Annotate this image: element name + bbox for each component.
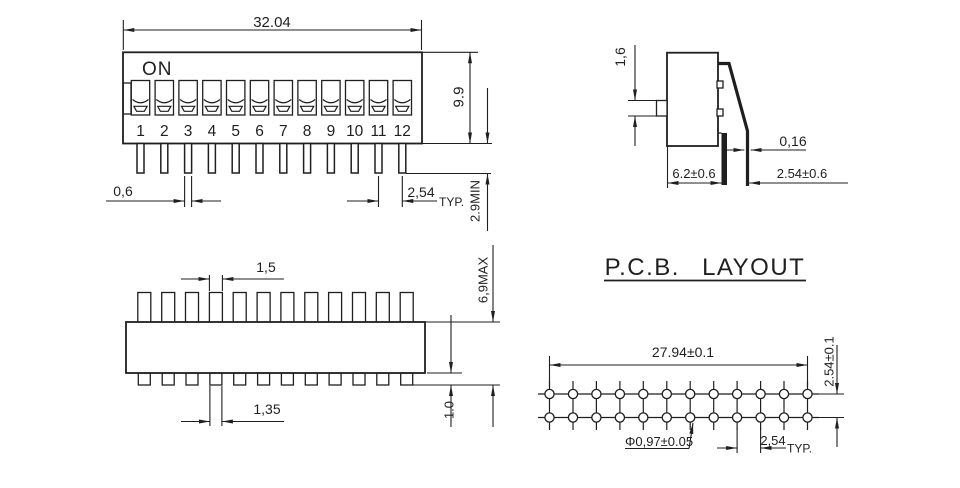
dim-body-depth: 6.2±0.6 bbox=[668, 146, 722, 188]
technical-drawing-sheet: ON 1 2 3 4 5 6 7 8 9 10 11 12 bbox=[0, 0, 960, 488]
svg-text:2.54±0.6: 2.54±0.6 bbox=[777, 166, 828, 181]
svg-text:1.0: 1.0 bbox=[442, 401, 457, 419]
side-actuator bbox=[657, 101, 668, 117]
svg-text:3: 3 bbox=[184, 123, 193, 140]
dim-body-height: 9.9 bbox=[422, 52, 492, 143]
svg-text:6.2±0.6: 6.2±0.6 bbox=[672, 166, 715, 181]
on-label: ON bbox=[142, 59, 173, 80]
svg-text:0,16: 0,16 bbox=[779, 133, 806, 149]
svg-text:9: 9 bbox=[327, 123, 336, 140]
svg-text:2.9MIN: 2.9MIN bbox=[468, 180, 483, 222]
hole-diameter-callout: Φ0,97±0.05 bbox=[625, 423, 693, 449]
pcb-layout-view: P.C.B. LAYOUT 27.94±0.1 bbox=[538, 254, 844, 456]
dim-row-pitch: 2.54±0.1 bbox=[818, 336, 844, 447]
dim-hole-span: 27.94±0.1 bbox=[550, 344, 808, 387]
dim-hole-pitch: 2,54 TYP. bbox=[717, 428, 812, 456]
svg-text:5: 5 bbox=[231, 123, 240, 140]
dim-pin-pitch: 2,54 TYP. bbox=[347, 176, 464, 209]
svg-text:1,35: 1,35 bbox=[253, 401, 280, 417]
dim-standoff: 1.0 bbox=[427, 315, 462, 427]
svg-text:8: 8 bbox=[303, 123, 312, 140]
side-straight-pin bbox=[722, 133, 728, 185]
svg-text:TYP.: TYP. bbox=[787, 442, 812, 456]
svg-text:1: 1 bbox=[136, 123, 145, 140]
bottom-view: 1,5 1,35 6,9MAX 1.0 bbox=[126, 245, 500, 427]
dim-overall-depth: 6,9MAX bbox=[413, 245, 500, 427]
svg-text:2.54±0.1: 2.54±0.1 bbox=[822, 336, 837, 387]
svg-text:12: 12 bbox=[394, 123, 411, 140]
side-view: 1,6 0,16 6.2±0.6 2.54±0.6 bbox=[612, 45, 848, 188]
bottom-body bbox=[126, 322, 425, 373]
svg-text:TYP.: TYP. bbox=[439, 195, 464, 209]
svg-text:10: 10 bbox=[346, 123, 364, 140]
svg-text:27.94±0.1: 27.94±0.1 bbox=[652, 344, 714, 360]
svg-text:Φ0,97±0.05: Φ0,97±0.05 bbox=[625, 434, 693, 449]
svg-text:6: 6 bbox=[255, 123, 264, 140]
svg-text:7: 7 bbox=[279, 123, 288, 140]
svg-text:9.9: 9.9 bbox=[451, 87, 468, 108]
dim-bottom-pin-width: 1,35 bbox=[181, 386, 284, 426]
dim-actuator-height: 1,6 bbox=[612, 45, 657, 146]
svg-text:1,6: 1,6 bbox=[612, 47, 628, 67]
svg-text:2,54: 2,54 bbox=[760, 433, 785, 448]
dim-overall-width: 32.04 bbox=[123, 14, 421, 50]
svg-text:6,9MAX: 6,9MAX bbox=[476, 257, 491, 304]
dip-switch-drawing: ON 1 2 3 4 5 6 7 8 9 10 11 12 bbox=[0, 0, 960, 488]
front-pins bbox=[137, 144, 406, 174]
pcb-hole-grid bbox=[538, 381, 819, 430]
dim-pin-width: 0,6 bbox=[106, 176, 221, 207]
svg-text:2,54: 2,54 bbox=[407, 184, 434, 200]
svg-text:11: 11 bbox=[370, 123, 386, 140]
dim-pin-thickness: 0,16 bbox=[726, 133, 807, 150]
pcb-layout-title: P.C.B. LAYOUT bbox=[605, 254, 806, 281]
svg-text:0,6: 0,6 bbox=[113, 183, 133, 199]
svg-text:2: 2 bbox=[160, 123, 169, 140]
front-end-notch bbox=[123, 83, 131, 114]
svg-text:32.04: 32.04 bbox=[253, 14, 291, 31]
bottom-top-pins bbox=[138, 293, 413, 323]
front-view: ON 1 2 3 4 5 6 7 8 9 10 11 12 bbox=[106, 14, 492, 231]
dim-actuator-width: 1,5 bbox=[181, 259, 284, 291]
dim-pin-row-offset: 2.54±0.6 bbox=[749, 166, 848, 183]
svg-text:1,5: 1,5 bbox=[256, 259, 276, 275]
bottom-bottom-pins bbox=[138, 373, 412, 385]
svg-text:4: 4 bbox=[208, 123, 217, 140]
